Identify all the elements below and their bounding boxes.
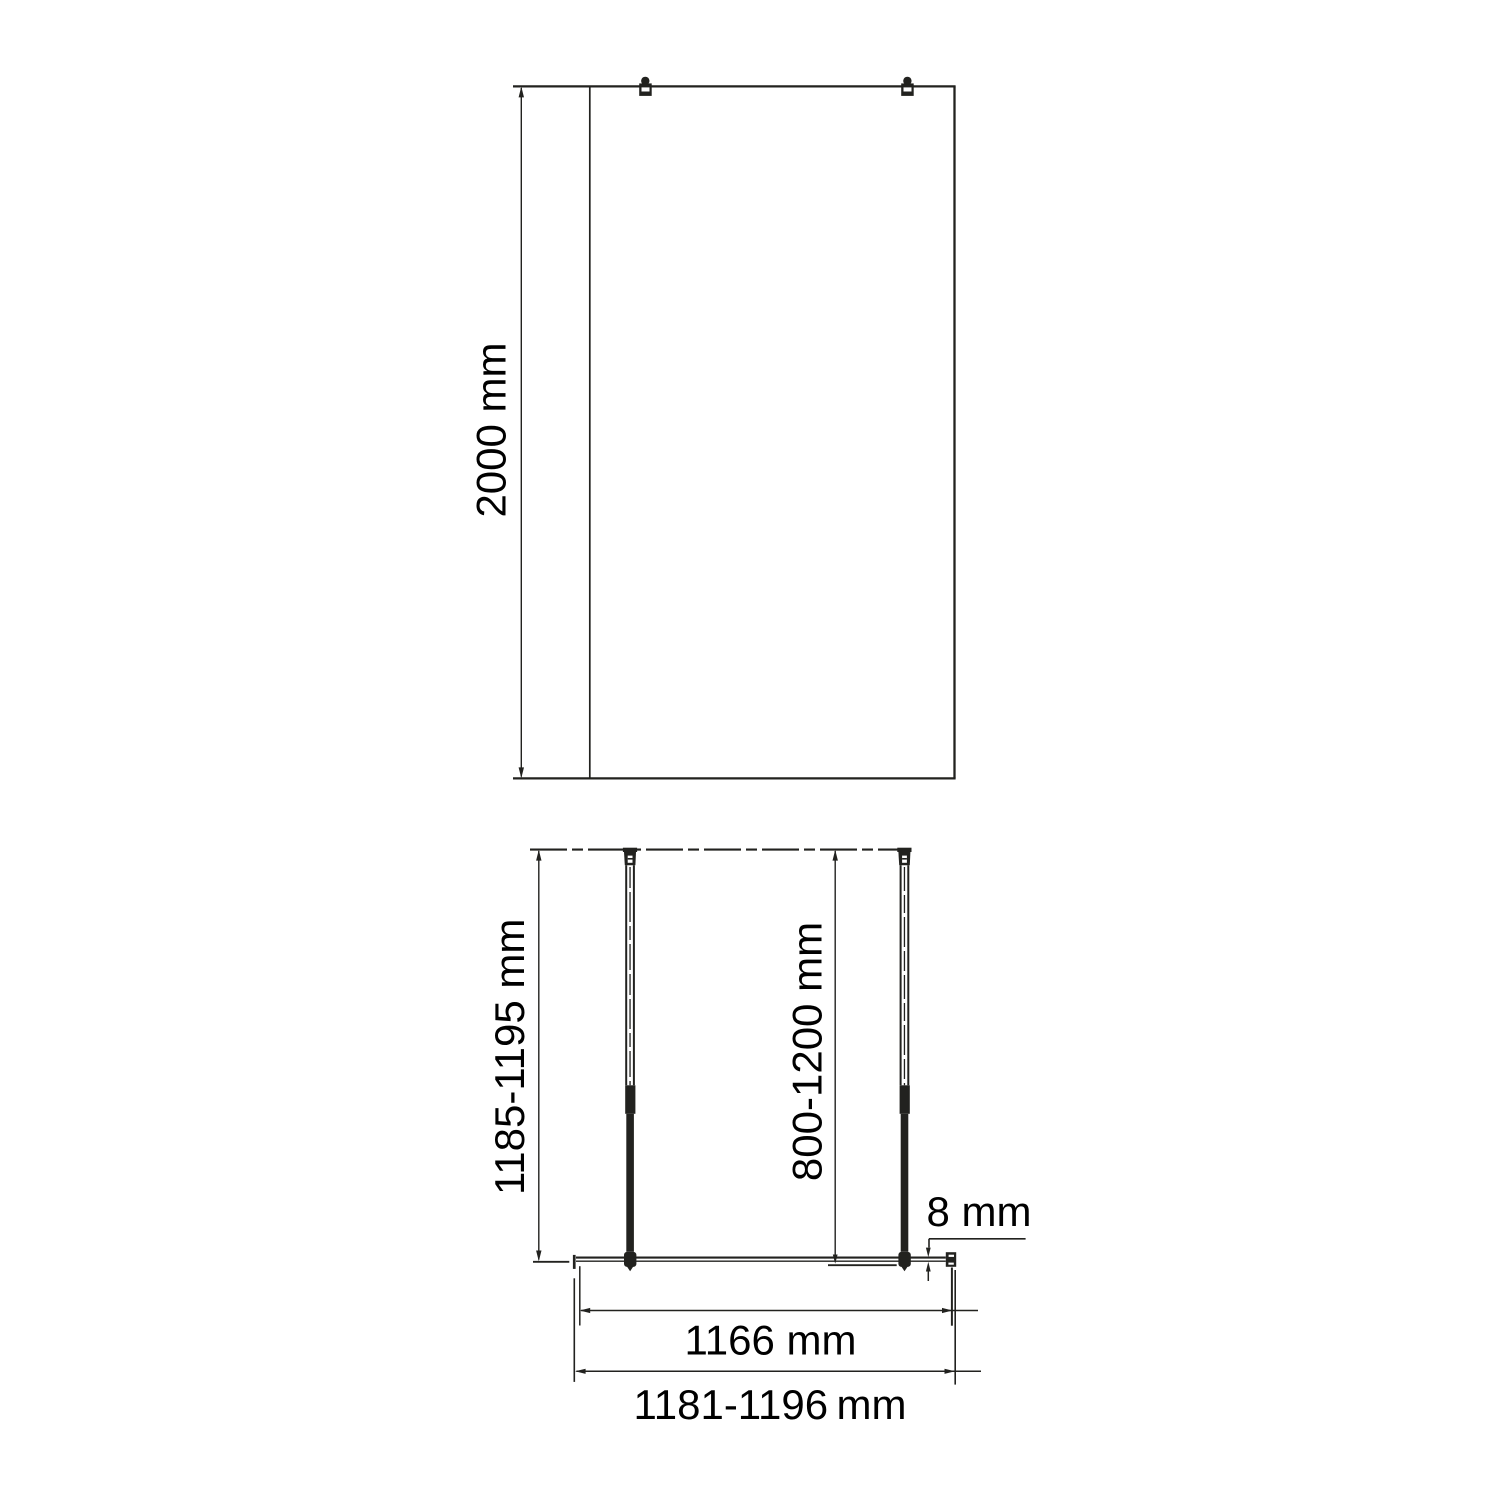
svg-text:8 mm: 8 mm — [927, 1188, 1032, 1235]
svg-text:1185-1195 mm: 1185-1195 mm — [486, 919, 533, 1195]
svg-text:2000 mm: 2000 mm — [468, 342, 515, 517]
svg-text:800-1200 mm: 800-1200 mm — [784, 922, 831, 1181]
svg-text:1181-1196 mm: 1181-1196 mm — [634, 1381, 907, 1428]
svg-text:1166 mm: 1166 mm — [685, 1317, 857, 1364]
